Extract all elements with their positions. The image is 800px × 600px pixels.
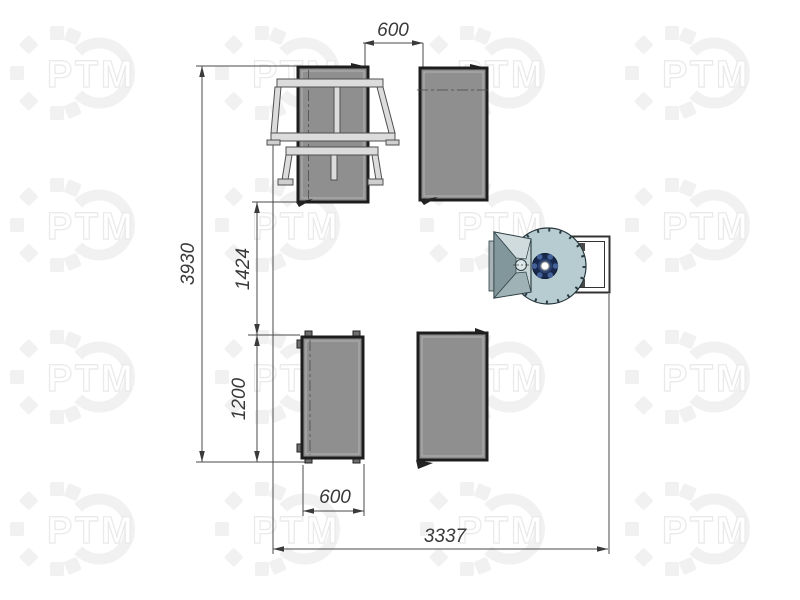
hub: [532, 254, 559, 279]
watermark: РТМ: [10, 330, 136, 424]
dim-overall-depth-label: 3930: [178, 242, 199, 285]
corner-tab: [475, 328, 489, 333]
watermark-label: РТМ: [662, 358, 751, 400]
hub-bore: [541, 262, 549, 270]
watermark-label: РТМ: [662, 206, 751, 248]
table-body: [302, 337, 363, 458]
watermark-label: РТМ: [47, 206, 136, 248]
hopper: [489, 232, 531, 298]
machine-bottom-right-table: [416, 328, 489, 469]
machine-top-right-table: [417, 64, 490, 205]
disc-machine: [489, 228, 610, 304]
dim-bottom-gap-label: 600: [319, 487, 351, 508]
machine-bottom-left-table: [297, 331, 363, 463]
technical-drawing: РТМ РТМ РТМ РТМ РТМ РТМ РТМ РТМ РТМ РТМ …: [0, 0, 800, 600]
watermark: РТМ: [10, 482, 136, 576]
table-body: [418, 333, 487, 460]
layout-drawing-canvas: РТМ РТМ РТМ РТМ РТМ РТМ РТМ РТМ РТМ РТМ …: [0, 0, 800, 600]
watermark: РТМ: [625, 26, 751, 120]
watermark-grid: РТМ РТМ РТМ РТМ РТМ РТМ РТМ РТМ РТМ РТМ …: [10, 26, 751, 576]
dim-top-gap-label: 600: [377, 20, 409, 41]
dim-overall-width-label: 3337: [424, 526, 468, 547]
dim-row-spacing-label: 1424: [233, 248, 254, 290]
watermark-label: РТМ: [47, 54, 136, 96]
watermark: РТМ: [10, 178, 136, 272]
machine-top-left-table: [267, 63, 399, 207]
dim-table-depth-label: 1200: [229, 377, 250, 420]
watermark-label: РТМ: [47, 358, 136, 400]
watermark: РТМ: [10, 26, 136, 120]
watermark-label: РТМ: [47, 510, 136, 552]
watermark-label: РТМ: [252, 510, 341, 552]
watermark-label: РТМ: [252, 206, 341, 248]
watermark: РТМ: [625, 330, 751, 424]
watermark-label: РТМ: [457, 510, 546, 552]
watermark-label: РТМ: [662, 510, 751, 552]
watermark: РТМ: [625, 482, 751, 576]
table-body: [420, 68, 487, 200]
hopper-plate: [489, 241, 494, 291]
watermark-label: РТМ: [662, 54, 751, 96]
watermark: РТМ: [625, 178, 751, 272]
